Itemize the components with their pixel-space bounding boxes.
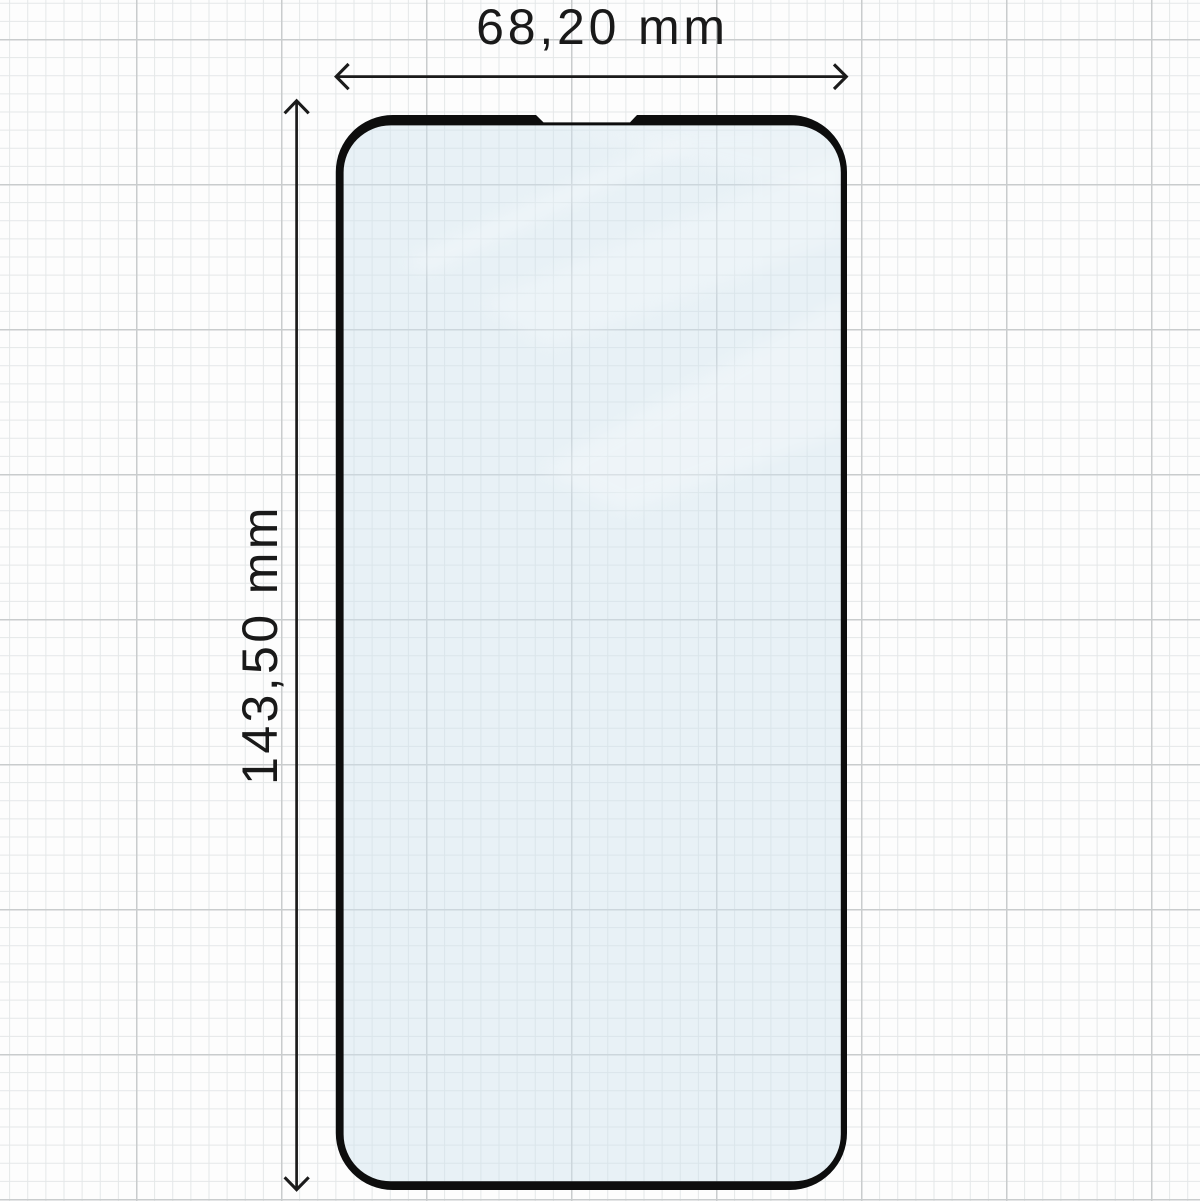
svg-text:143,50 mm: 143,50 mm xyxy=(232,504,288,785)
svg-text:68,20 mm: 68,20 mm xyxy=(476,0,729,55)
